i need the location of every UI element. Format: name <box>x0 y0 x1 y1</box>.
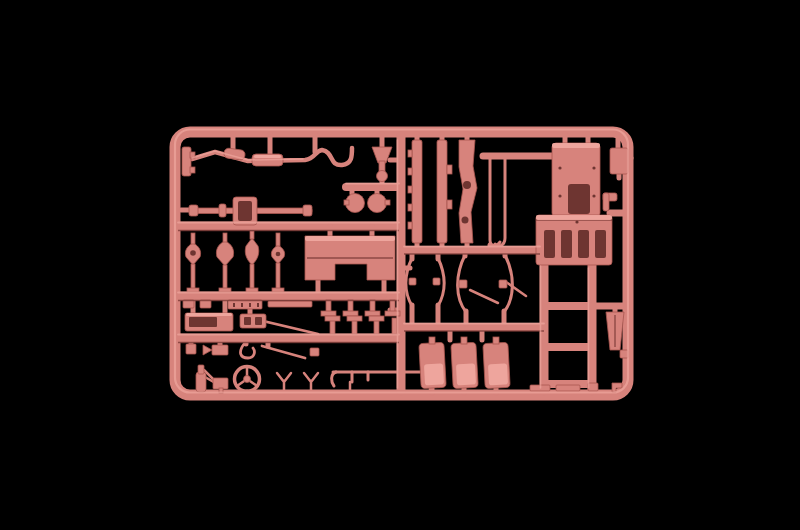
vignette-overlay <box>0 0 800 530</box>
photo-stage: Salmon-pink injection-molded model kit s… <box>0 0 800 530</box>
sprue-photo: Salmon-pink injection-molded model kit s… <box>0 0 800 530</box>
